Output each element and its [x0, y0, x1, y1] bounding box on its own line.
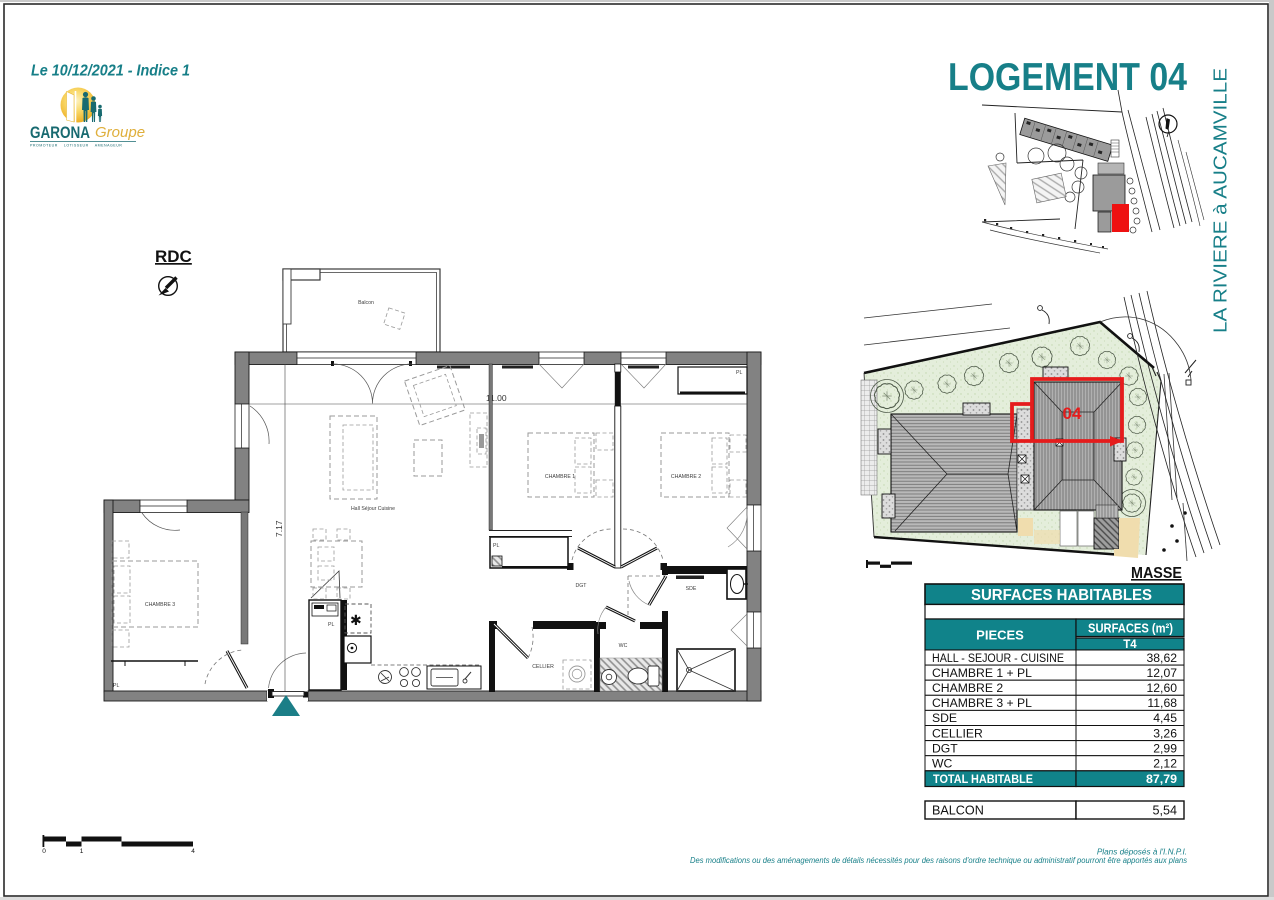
svg-text:87,79: 87,79 — [1146, 772, 1177, 786]
svg-text:1: 1 — [80, 848, 84, 855]
svg-text:PL: PL — [736, 370, 742, 376]
svg-text:PIECES: PIECES — [976, 628, 1024, 643]
svg-text:11,68: 11,68 — [1147, 696, 1177, 710]
svg-text:Hall Séjour Cuisine: Hall Séjour Cuisine — [351, 506, 395, 512]
svg-text:WC: WC — [619, 643, 628, 649]
svg-text:TOTAL HABITABLE: TOTAL HABITABLE — [933, 772, 1033, 786]
svg-text:SURFACES (m²): SURFACES (m²) — [1088, 622, 1173, 636]
svg-text:SDE: SDE — [686, 586, 697, 592]
svg-text:0: 0 — [42, 848, 46, 855]
svg-text:04: 04 — [1063, 404, 1082, 423]
svg-text:2,99: 2,99 — [1153, 741, 1177, 755]
svg-text:SURFACES HABITABLES: SURFACES HABITABLES — [971, 587, 1152, 604]
svg-text:CELLIER: CELLIER — [932, 726, 983, 740]
svg-text:CELLIER: CELLIER — [532, 664, 554, 670]
svg-text:PL: PL — [113, 683, 119, 689]
svg-text:PROMOTEUR LOTISSEUR AMEN: PROMOTEUR LOTISSEUR AMENAGEUR — [30, 144, 122, 148]
svg-text:Balcon: Balcon — [358, 300, 374, 306]
svg-text:Le 10/12/2021 - Indice 1: Le 10/12/2021 - Indice 1 — [31, 63, 190, 80]
svg-text:HALL - SEJOUR - CUISINE: HALL - SEJOUR - CUISINE — [932, 651, 1064, 665]
svg-text:2,12: 2,12 — [1153, 757, 1177, 771]
svg-text:SDE: SDE — [932, 711, 957, 725]
svg-text:BALCON: BALCON — [932, 804, 984, 818]
svg-text:CHAMBRE 3 + PL: CHAMBRE 3 + PL — [932, 696, 1032, 710]
svg-text:CHAMBRE 2: CHAMBRE 2 — [671, 474, 701, 480]
svg-text:3,26: 3,26 — [1153, 726, 1177, 740]
svg-text:LOGEMENT 04: LOGEMENT 04 — [948, 56, 1188, 99]
svg-text:✱: ✱ — [350, 612, 362, 628]
svg-text:PL: PL — [493, 543, 499, 549]
svg-text:CHAMBRE 3: CHAMBRE 3 — [145, 602, 175, 608]
svg-text:12,60: 12,60 — [1147, 681, 1178, 695]
svg-text:WC: WC — [932, 757, 953, 771]
svg-text:GARONA: GARONA — [30, 123, 90, 142]
svg-text:Des modifications ou des aména: Des modifications ou des aménagements de… — [690, 856, 1187, 865]
svg-text:T4: T4 — [1123, 639, 1137, 651]
svg-text:Groupe: Groupe — [95, 124, 145, 141]
svg-text:DGT: DGT — [576, 583, 588, 589]
svg-text:RDC: RDC — [155, 247, 192, 266]
svg-text:CHAMBRE 2: CHAMBRE 2 — [932, 681, 1003, 695]
svg-text:PL: PL — [328, 622, 334, 628]
svg-text:4,45: 4,45 — [1153, 711, 1177, 725]
svg-text:CHAMBRE 1 + PL: CHAMBRE 1 + PL — [932, 666, 1032, 680]
svg-text:4: 4 — [191, 848, 195, 855]
svg-text:MASSE: MASSE — [1131, 565, 1182, 582]
svg-text:7.17: 7.17 — [274, 520, 284, 537]
svg-text:5,54: 5,54 — [1152, 804, 1177, 818]
svg-text:LA RIVIERE à AUCAMVILLE: LA RIVIERE à AUCAMVILLE — [1210, 68, 1231, 333]
svg-text:CHAMBRE 1: CHAMBRE 1 — [545, 474, 575, 480]
svg-text:38,62: 38,62 — [1147, 651, 1178, 665]
svg-text:12,07: 12,07 — [1147, 666, 1178, 680]
svg-text:DGT: DGT — [932, 741, 958, 755]
